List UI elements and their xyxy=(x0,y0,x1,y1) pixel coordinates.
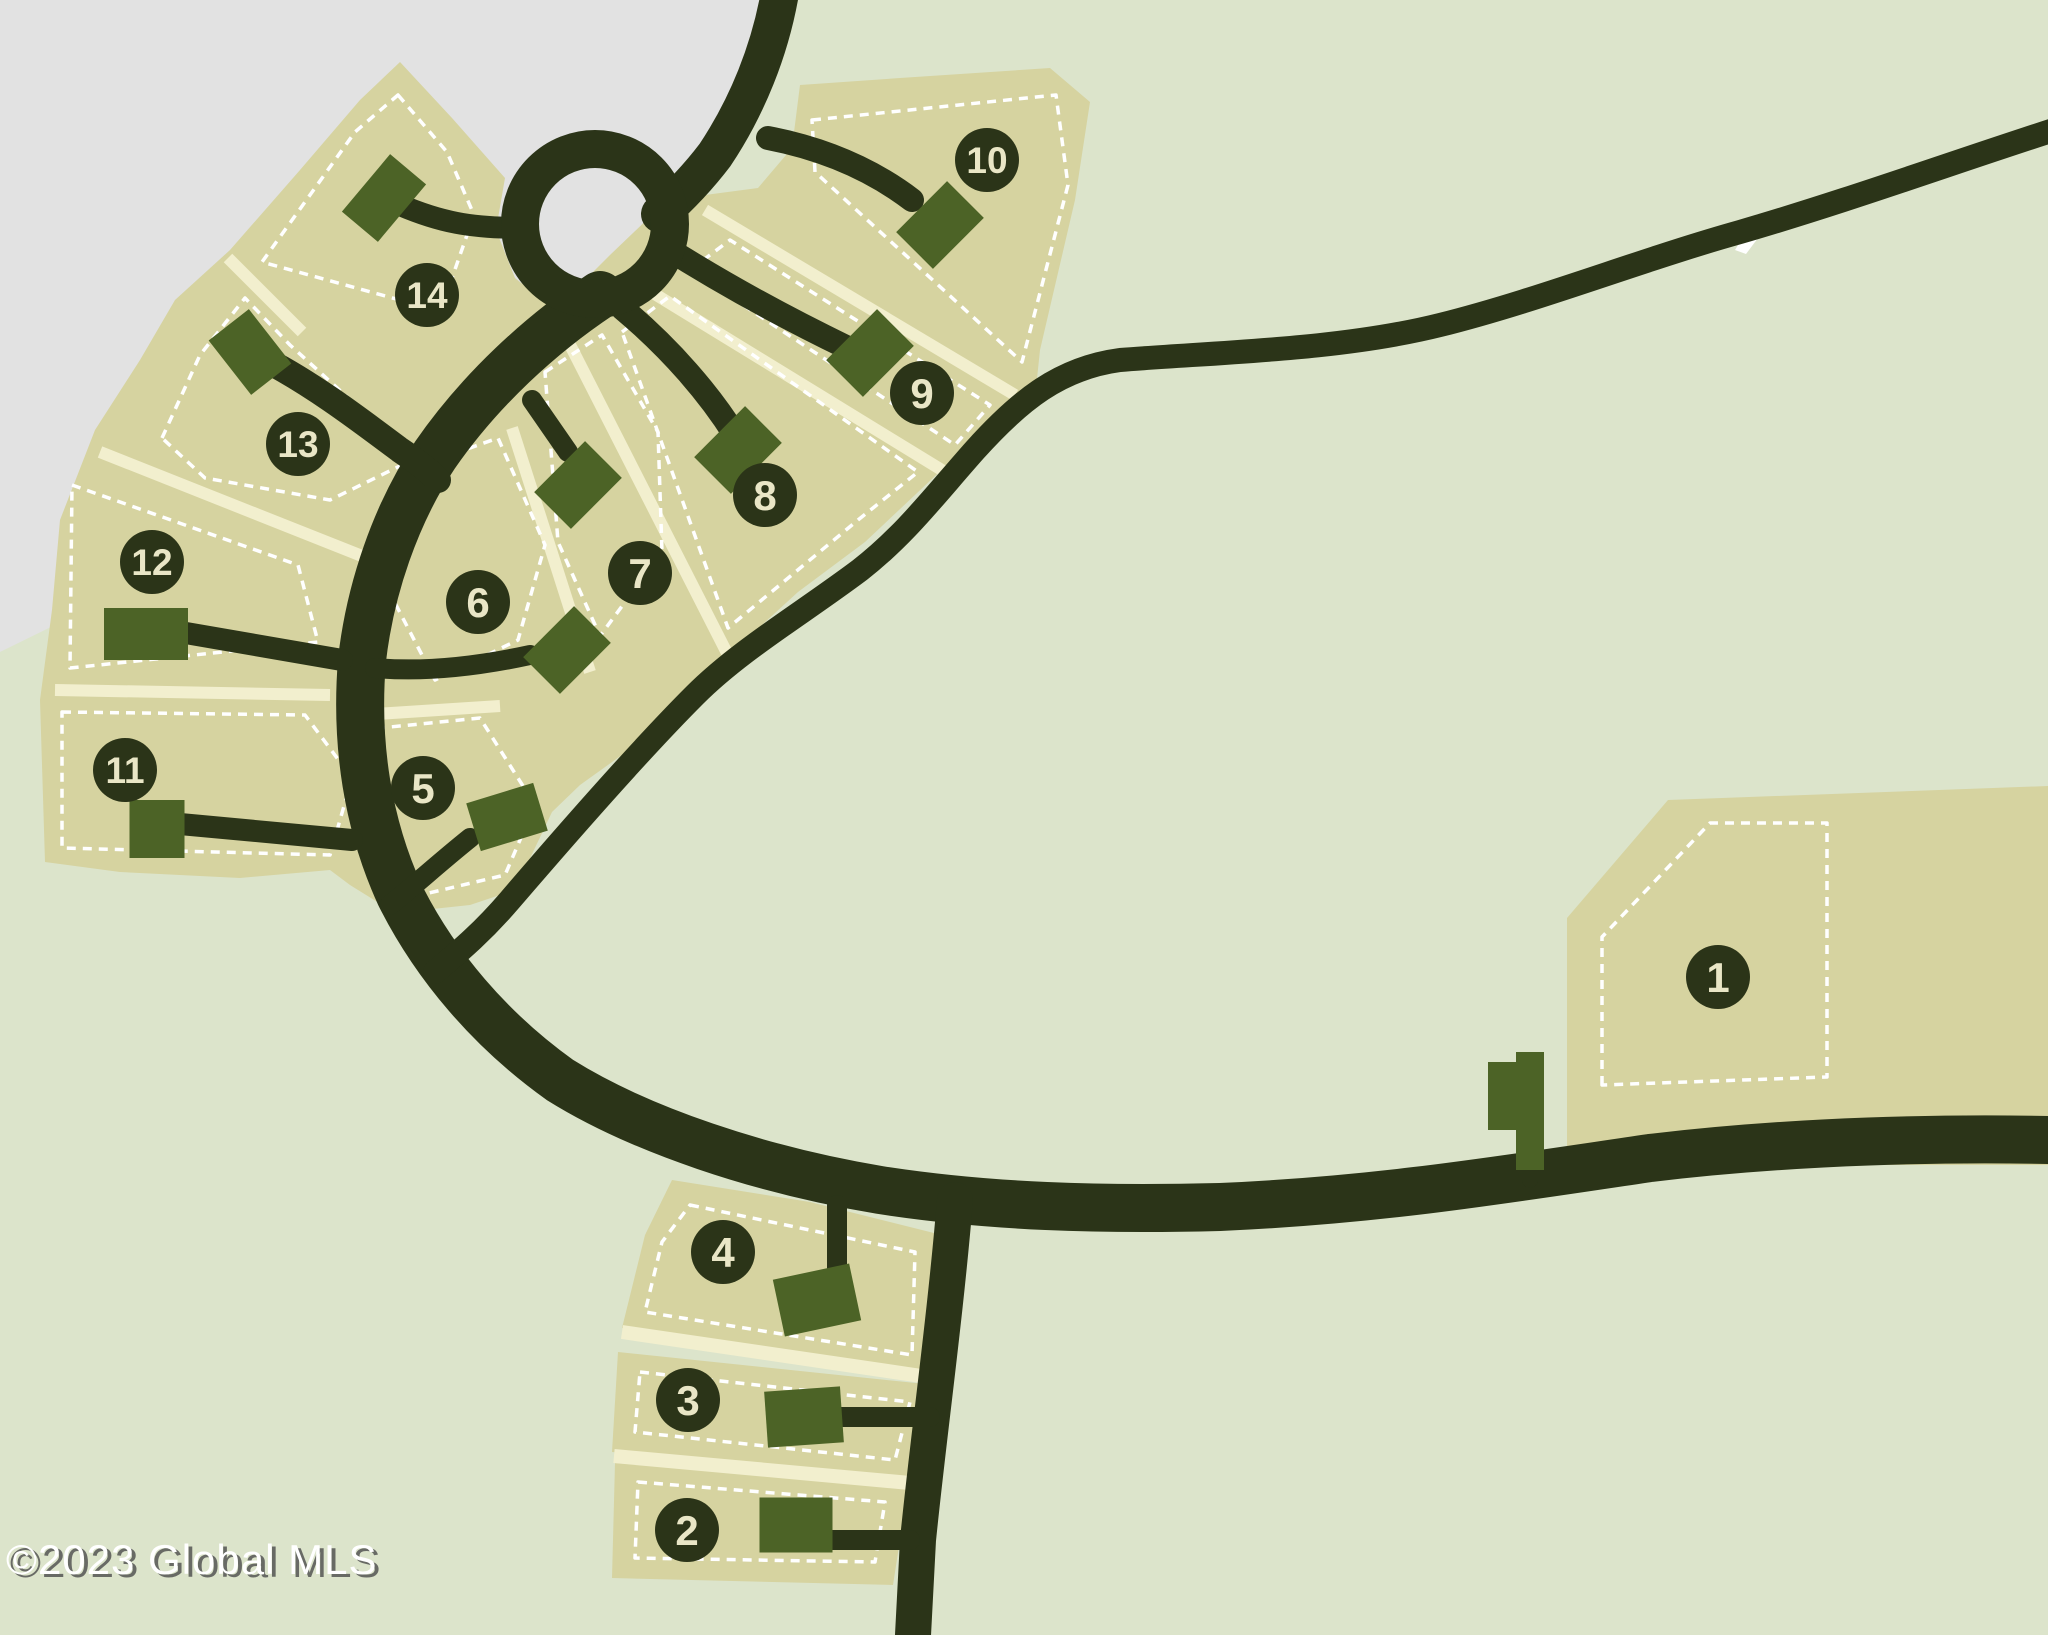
building-footprint-lot-11 xyxy=(130,800,185,858)
lot-region-lot-1 xyxy=(1567,786,2048,1165)
lot-badge-label-1: 1 xyxy=(1706,954,1729,1001)
plat-map: 1234567891011121314 ©2023 Global MLS xyxy=(0,0,2048,1635)
building-footprint-lot-1a xyxy=(1516,1052,1544,1170)
lot-badge-label-11: 11 xyxy=(105,750,144,791)
lot-badge-label-14: 14 xyxy=(406,275,448,316)
lot-badge-label-9: 9 xyxy=(910,370,933,417)
building-footprint-lot-3 xyxy=(764,1386,844,1447)
lot-badge-label-2: 2 xyxy=(675,1507,698,1554)
plat-map-svg: 1234567891011121314 xyxy=(0,0,2048,1635)
lot-badge-label-3: 3 xyxy=(676,1377,699,1424)
building-footprint-lot-2 xyxy=(760,1498,833,1553)
building-footprint-lot-12 xyxy=(104,608,188,660)
lot-badge-label-6: 6 xyxy=(466,579,489,626)
lot-badge-label-5: 5 xyxy=(411,765,434,812)
lot-badge-label-4: 4 xyxy=(711,1229,735,1276)
copyright-watermark: ©2023 Global MLS xyxy=(6,1536,377,1584)
lot-badge-label-10: 10 xyxy=(966,140,1007,181)
lot-badge-label-7: 7 xyxy=(628,550,651,597)
divider-12-11 xyxy=(55,690,330,695)
building-footprint-lot-1b xyxy=(1488,1062,1518,1130)
lot-badge-label-12: 12 xyxy=(131,542,172,583)
lot-badge-label-13: 13 xyxy=(277,424,318,465)
lot-badge-label-8: 8 xyxy=(753,472,776,519)
